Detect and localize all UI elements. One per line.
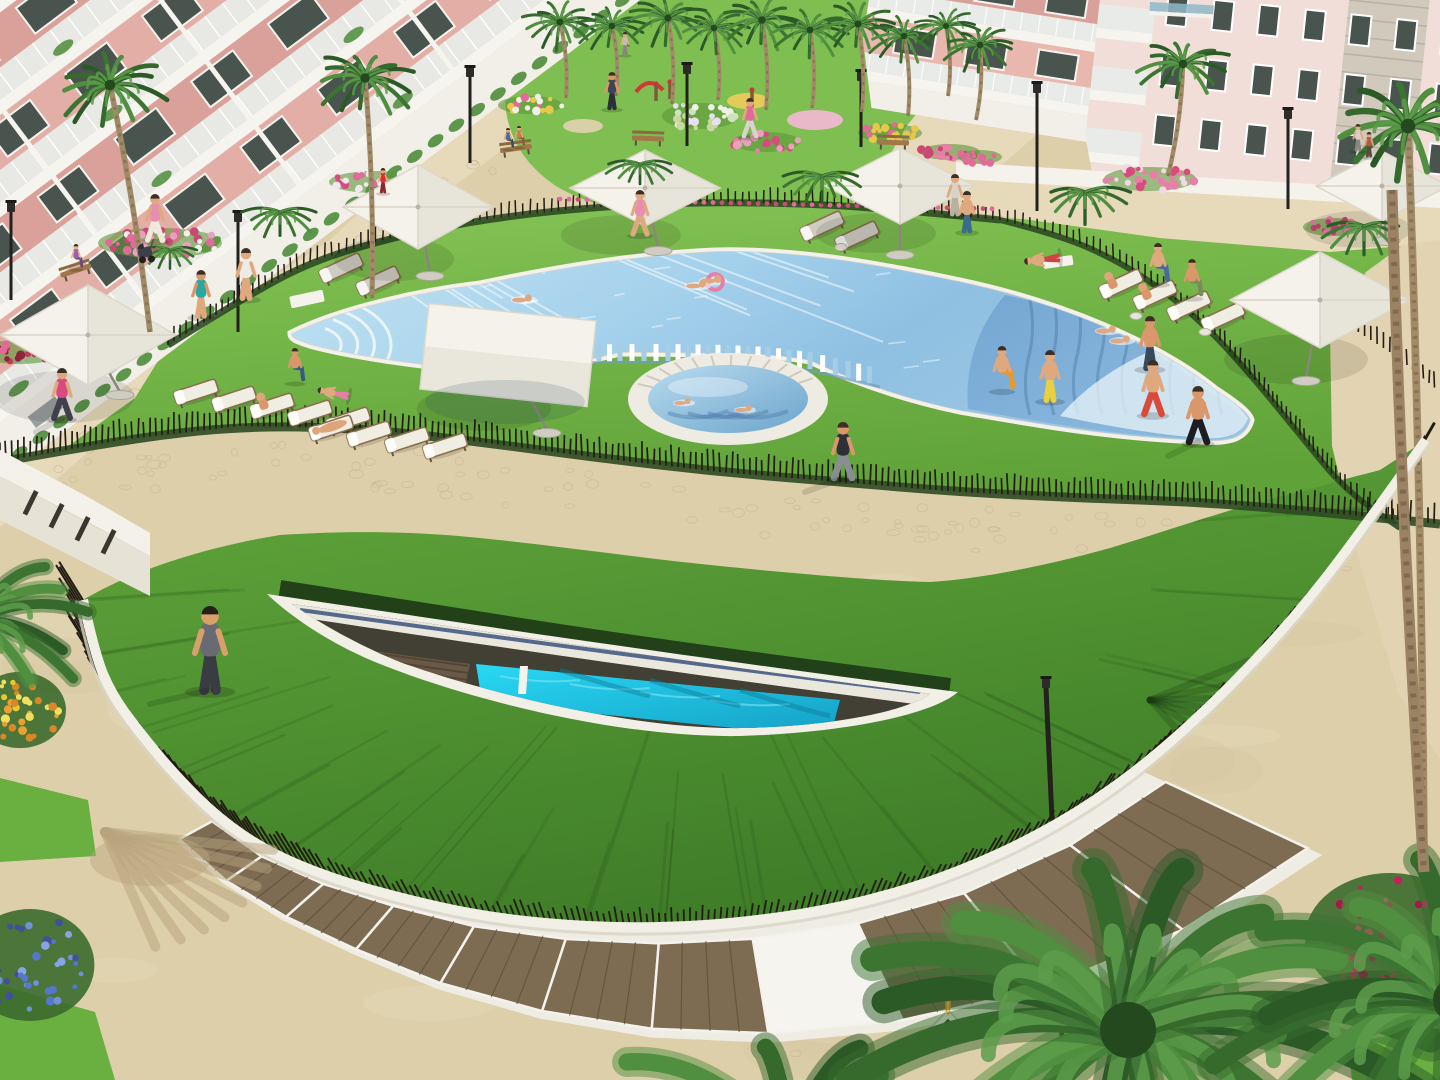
side-table: [1199, 329, 1211, 336]
kids-spa-pool: [628, 353, 828, 445]
play-pad: [563, 119, 603, 133]
scene-canvas: [0, 0, 1440, 1080]
play-pad: [787, 110, 843, 130]
resort-aerial-render: [0, 0, 1440, 1080]
canopy-shadow: [425, 380, 585, 424]
spa-water: [648, 365, 808, 433]
side-table: [1130, 313, 1142, 320]
